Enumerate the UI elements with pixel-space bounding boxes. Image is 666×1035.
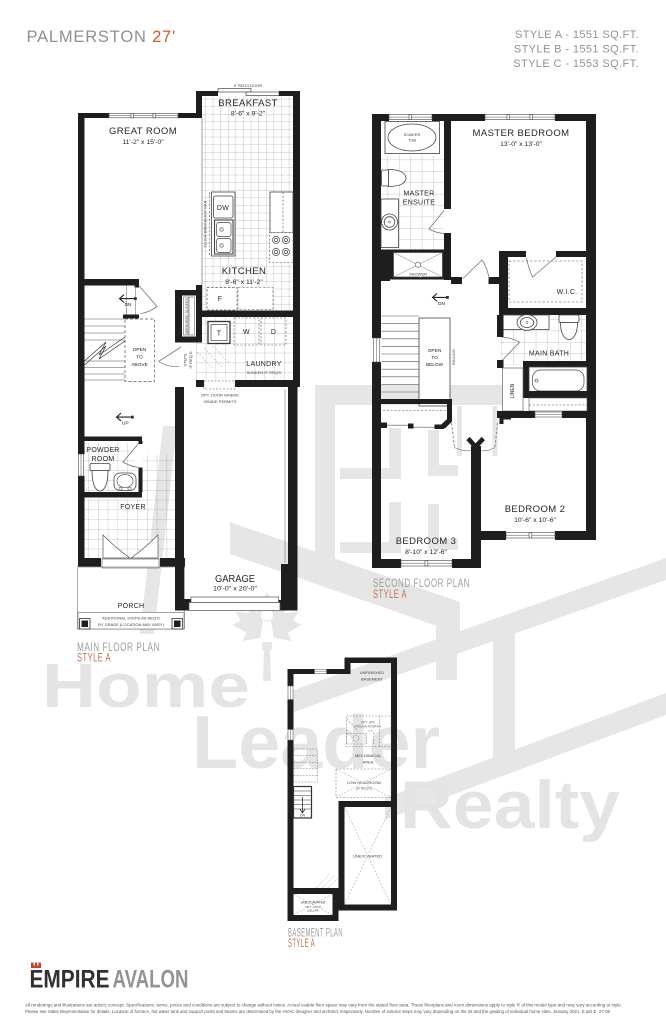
svg-text:BEDROOM 2: BEDROOM 2 xyxy=(505,504,566,515)
svg-text:GREAT ROOM: GREAT ROOM xyxy=(109,126,177,137)
svg-text:STYLE A - 1551 SQ.FT.: STYLE A - 1551 SQ.FT. xyxy=(515,29,639,41)
svg-text:OPEN: OPEN xyxy=(133,347,147,353)
svg-text:UNEXCAVATED: UNEXCAVATED xyxy=(353,854,382,859)
svg-text:Please see Sales Representativ: Please see Sales Representative for deta… xyxy=(25,1009,611,1014)
svg-text:8'-6" x 9'-2": 8'-6" x 9'-2" xyxy=(231,111,266,118)
svg-text:SHOWER: SHOWER xyxy=(409,272,427,277)
svg-text:AREA: AREA xyxy=(363,760,374,765)
svg-text:ADDITIONAL STEPS AS REQ'D: ADDITIONAL STEPS AS REQ'D xyxy=(102,616,160,621)
svg-text:STYLE A: STYLE A xyxy=(77,653,111,665)
svg-text:BREAKFAST: BREAKFAST xyxy=(218,98,278,109)
svg-text:T: T xyxy=(217,331,222,338)
svg-text:BASEMENT: BASEMENT xyxy=(361,677,384,682)
svg-text:POWDER: POWDER xyxy=(86,447,119,454)
svg-text:11'-2" x 15'-0": 11'-2" x 15'-0" xyxy=(122,139,164,146)
svg-text:STEPS: STEPS xyxy=(183,353,188,366)
svg-text:TO: TO xyxy=(136,355,143,361)
svg-text:STYLE A: STYLE A xyxy=(373,589,407,601)
svg-text:F: F xyxy=(218,296,223,303)
svg-text:GRADE PERMITS: GRADE PERMITS xyxy=(203,399,236,404)
svg-text:MASTER: MASTER xyxy=(404,191,435,198)
svg-text:LAUNDRY: LAUNDRY xyxy=(246,361,281,368)
svg-text:PORCH: PORCH xyxy=(118,603,145,610)
svg-text:UP: UP xyxy=(122,421,129,427)
svg-text:BY GRADE (LOCATION MAY VARY): BY GRADE (LOCATION MAY VARY) xyxy=(98,622,164,627)
svg-text:DN: DN xyxy=(300,814,305,818)
svg-text:10'-6" x 10'-6": 10'-6" x 10'-6" xyxy=(514,517,556,524)
svg-text:Realty: Realty xyxy=(400,767,620,843)
svg-text:BELOW: BELOW xyxy=(426,362,444,368)
svg-text:CELLAR: CELLAR xyxy=(307,909,320,913)
svg-text:EMPIRE: EMPIRE xyxy=(30,966,110,994)
svg-text:MASTER BEDROOM: MASTER BEDROOM xyxy=(473,128,570,139)
svg-text:AVALON: AVALON xyxy=(113,966,189,994)
svg-text:IF REQ'D: IF REQ'D xyxy=(188,351,193,368)
svg-text:10'-0" x 20'-0": 10'-0" x 20'-0" xyxy=(213,586,257,593)
svg-text:MIRRORED SLIDERS: MIRRORED SLIDERS xyxy=(185,297,189,334)
svg-text:MAIN BATH: MAIN BATH xyxy=(529,351,569,358)
svg-text:OPEN: OPEN xyxy=(428,348,442,354)
svg-text:SUNKEN IF REQ'D: SUNKEN IF REQ'D xyxy=(247,370,282,375)
svg-text:13'-0" x 13'-0": 13'-0" x 13'-0" xyxy=(500,141,542,148)
svg-text:D: D xyxy=(271,329,276,336)
svg-text:ENSUITE: ENSUITE xyxy=(403,200,435,207)
svg-text:STYLE B - 1551 SQ.FT.: STYLE B - 1551 SQ.FT. xyxy=(514,44,639,56)
svg-text:OPT. DOOR WHERE: OPT. DOOR WHERE xyxy=(201,393,239,398)
svg-text:FLUSH BREAKFAST BAR: FLUSH BREAKFAST BAR xyxy=(203,200,208,247)
svg-text:BEDROOM 3: BEDROOM 3 xyxy=(396,536,457,547)
svg-text:DN: DN xyxy=(438,301,445,307)
svg-text:SOAKER: SOAKER xyxy=(404,132,421,137)
svg-text:ROUGH-IN BATH: ROUGH-IN BATH xyxy=(355,725,381,729)
svg-text:LOW HEADROOM: LOW HEADROOM xyxy=(347,780,381,785)
svg-text:UNEXCAVATED: UNEXCAVATED xyxy=(301,901,326,905)
svg-text:8'-10" x 12'-6": 8'-10" x 12'-6" xyxy=(405,549,447,556)
svg-text:RAILING: RAILING xyxy=(451,349,456,365)
svg-text:8'-6" x 11'-2": 8'-6" x 11'-2" xyxy=(225,279,263,286)
svg-text:KITCHEN: KITCHEN xyxy=(222,266,267,277)
svg-text:ABOVE: ABOVE xyxy=(131,362,148,368)
svg-text:GARAGE: GARAGE xyxy=(215,573,255,585)
svg-text:STYLE A: STYLE A xyxy=(288,938,315,950)
svg-text:TUB: TUB xyxy=(408,138,416,143)
svg-text:ROOM: ROOM xyxy=(92,456,115,463)
svg-text:FOYER: FOYER xyxy=(120,504,146,511)
svg-text:TO: TO xyxy=(431,355,438,361)
svg-text:5' PATIO DOOR: 5' PATIO DOOR xyxy=(234,83,263,88)
svg-text:DW: DW xyxy=(217,205,229,212)
svg-text:PALMERSTON 27': PALMERSTON 27' xyxy=(27,28,176,46)
svg-text:(IF REQ'D): (IF REQ'D) xyxy=(356,787,372,791)
svg-text:UNFINISHED: UNFINISHED xyxy=(360,670,385,675)
svg-text:LINEN: LINEN xyxy=(510,383,516,398)
svg-text:W.I.C.: W.I.C. xyxy=(557,289,578,296)
svg-text:All renderings and illustratio: All renderings and illustrations are art… xyxy=(25,1003,622,1008)
svg-text:W: W xyxy=(243,329,250,336)
svg-text:STYLE C - 1553 SQ.FT.: STYLE C - 1553 SQ.FT. xyxy=(513,58,639,70)
svg-text:MECHANICAL: MECHANICAL xyxy=(355,753,382,758)
svg-text:DN: DN xyxy=(125,302,132,308)
